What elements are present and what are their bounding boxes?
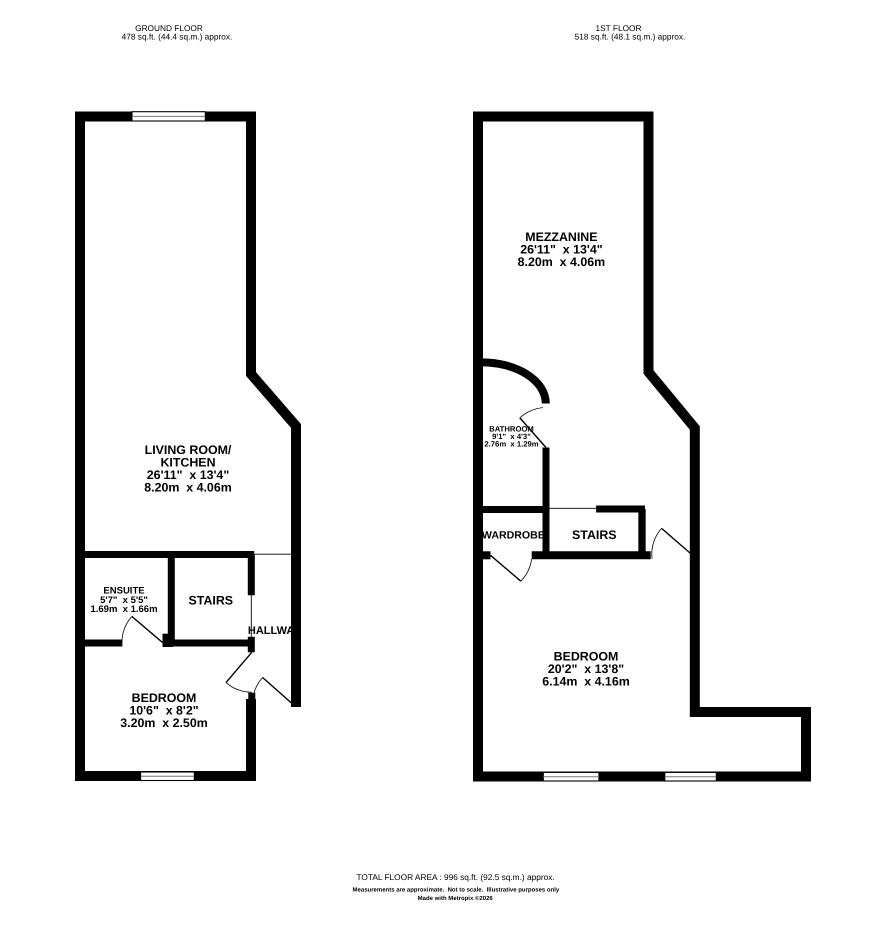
svg-text:WARDROBE: WARDROBE [482, 530, 545, 542]
svg-text:6.14m x 4.16m: 6.14m x 4.16m [542, 675, 630, 689]
svg-text:8.20m x 4.06m: 8.20m x 4.06m [518, 255, 606, 269]
svg-text:1.69m x 1.66m: 1.69m x 1.66m [90, 604, 157, 615]
svg-text:518 sq.ft. (48.1 sq.m.) approx: 518 sq.ft. (48.1 sq.m.) approx. [575, 32, 686, 42]
svg-text:STAIRS: STAIRS [189, 594, 234, 608]
svg-text:Made with Metropix ©2026: Made with Metropix ©2026 [418, 895, 494, 902]
svg-text:2.76m x 1.29m: 2.76m x 1.29m [484, 440, 538, 449]
svg-text:Measurements are approximate.: Measurements are approximate. Not to sca… [353, 887, 560, 894]
svg-text:8.20m x 4.06m: 8.20m x 4.06m [144, 480, 232, 494]
svg-text:TOTAL FLOOR AREA : 996 sq.ft.: TOTAL FLOOR AREA : 996 sq.ft. (92.5 sq.m… [357, 872, 555, 882]
svg-text:478 sq.ft. (44.4 sq.m.) approx: 478 sq.ft. (44.4 sq.m.) approx. [122, 32, 233, 42]
svg-text:STAIRS: STAIRS [572, 528, 617, 542]
svg-text:3.20m x 2.50m: 3.20m x 2.50m [120, 716, 208, 730]
